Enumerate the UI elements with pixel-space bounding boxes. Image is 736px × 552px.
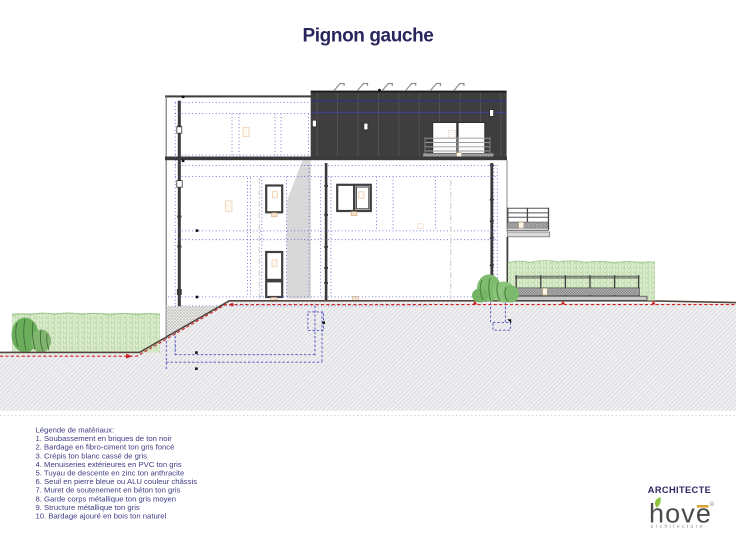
svg-text:Pignon gauche: Pignon gauche [303,26,434,47]
svg-text:architecture: architecture [651,524,705,530]
svg-text:10. Bardage ajouré en bois ton: 10. Bardage ajouré en bois ton naturel [36,512,167,521]
svg-text:Légende de matériaux:: Légende de matériaux: [36,425,115,434]
svg-text:ARCHITECTE: ARCHITECTE [648,485,711,495]
